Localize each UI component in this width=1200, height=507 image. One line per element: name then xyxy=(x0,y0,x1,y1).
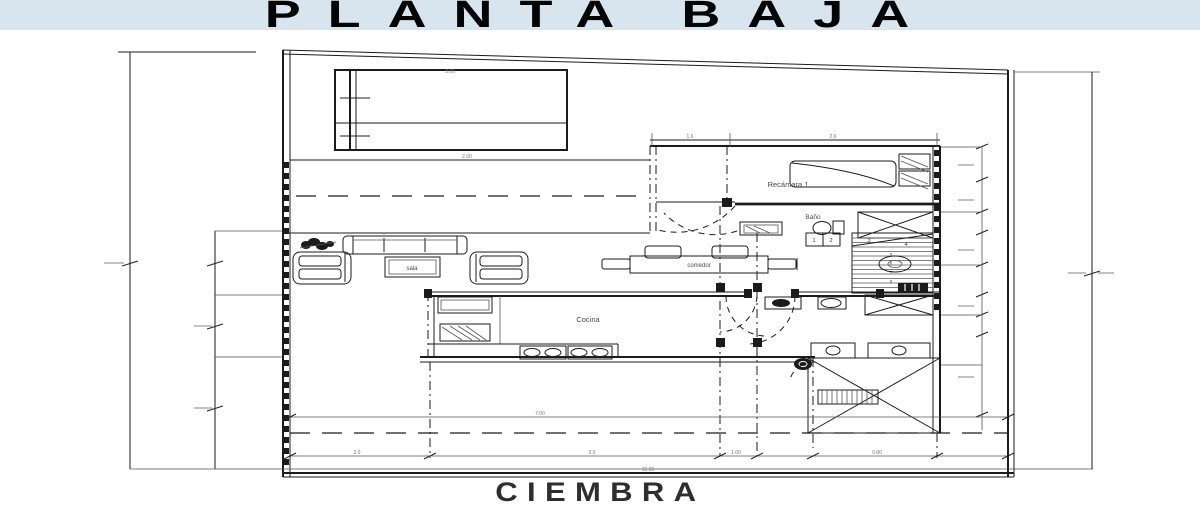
staircase: 1 2 3 4 5 6 7 8 xyxy=(806,233,933,293)
dim-seg-a: 2.0 xyxy=(354,450,361,456)
room-label-living: sala xyxy=(406,266,418,272)
page-title: PLANTA BAJA xyxy=(264,0,936,30)
dim-driveway: 2.00 xyxy=(462,154,472,160)
carport: 3.00 xyxy=(335,69,567,150)
coffee-table: sala xyxy=(385,257,440,277)
room-label-bathroom: Baño xyxy=(805,214,821,221)
kitchen: Cocina xyxy=(420,292,815,362)
kitchen-sink xyxy=(440,324,490,341)
title-bar: PLANTA BAJA xyxy=(0,0,1200,30)
stair-step-4: 4 xyxy=(904,242,907,248)
utility-sink xyxy=(765,297,801,309)
washer xyxy=(811,343,855,358)
dining-chair xyxy=(602,259,630,269)
armchair-right xyxy=(470,252,528,284)
bathroom: Baño xyxy=(664,213,844,235)
floor-plan-sheet: PLANTA BAJA xyxy=(0,0,1200,507)
dim-carport-width: 3.00 xyxy=(445,69,455,75)
drain-fixture xyxy=(794,358,812,370)
room-label-kitchen: Cocina xyxy=(576,315,600,324)
service-area xyxy=(790,343,940,448)
footer-label: CIEMBRA xyxy=(495,477,705,507)
dim-seg-b: 3.0 xyxy=(589,450,596,456)
bed xyxy=(790,154,930,189)
bedroom-closet xyxy=(858,212,933,238)
corridor-axes xyxy=(716,206,764,456)
room-label-bedroom: Recámara 1 xyxy=(768,180,809,189)
dryer xyxy=(868,343,930,358)
dim-span-mid: 7.00 xyxy=(535,411,545,417)
floor-plan-drawing: 3.00 2.00 1.6 2.6 xyxy=(0,0,1200,507)
stair-step-2: 2 xyxy=(829,238,832,244)
utility-basin xyxy=(818,297,846,309)
stair-step-1: 1 xyxy=(812,238,815,244)
dim-lot-width: 15.00 xyxy=(642,467,655,473)
dining-chair xyxy=(768,259,796,269)
footer-label-wrap: CIEMBRA xyxy=(0,477,1200,507)
dimension-frame-right xyxy=(940,72,1114,469)
toilet xyxy=(813,221,844,235)
lot-boundary xyxy=(130,50,1093,477)
sofa xyxy=(343,236,467,254)
living-room: sala xyxy=(293,236,528,284)
dining: comedor xyxy=(602,246,797,273)
loveseat-left xyxy=(293,252,351,284)
utility-closet xyxy=(865,295,933,315)
plant-icon xyxy=(300,238,336,250)
stair-step-3: 3 xyxy=(867,238,870,244)
driveway: 2.00 xyxy=(283,154,650,233)
dim-bedroom-b: 2.6 xyxy=(830,134,837,140)
dim-seg-c: 1.00 xyxy=(731,450,741,456)
room-label-dining: comedor xyxy=(687,263,710,269)
refrigerator xyxy=(438,297,492,313)
dim-seg-d: 0.80 xyxy=(872,450,882,456)
service-patio-x xyxy=(808,358,940,433)
bathroom-sink xyxy=(740,222,782,235)
dimension-frame-left xyxy=(104,52,283,469)
dim-bedroom-a: 1.6 xyxy=(687,134,694,140)
